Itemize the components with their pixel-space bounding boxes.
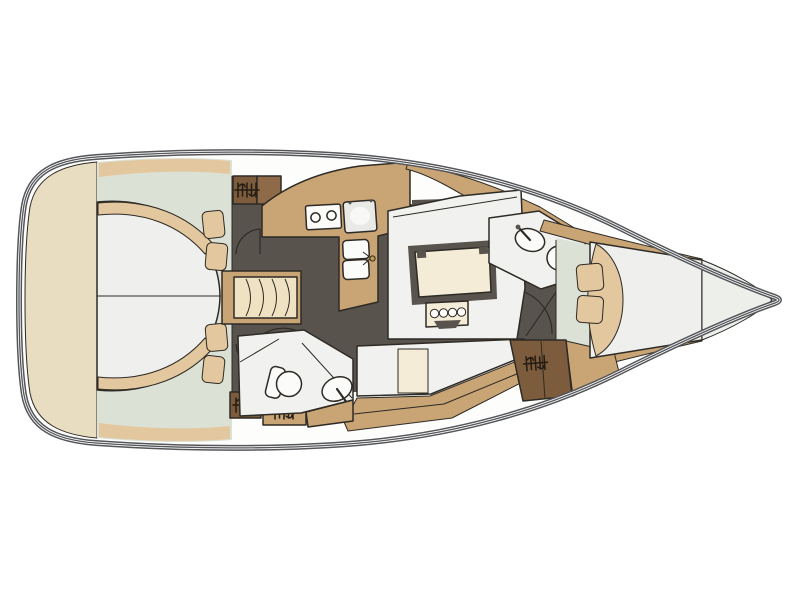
pillow <box>576 295 604 324</box>
pillow <box>202 210 226 239</box>
yacht-layout-plan <box>0 0 800 600</box>
bottle-hole <box>430 309 438 317</box>
burner <box>311 213 320 222</box>
settee-cushion <box>398 349 428 393</box>
companionway-steps <box>222 271 301 324</box>
pillow <box>205 242 228 271</box>
salon-table <box>415 247 491 297</box>
icebox-hinge <box>349 202 352 205</box>
toilet-bowl <box>277 372 302 397</box>
table-hinge <box>479 247 488 255</box>
hanger-icon <box>235 183 259 197</box>
floor-plan-canvas <box>0 0 800 600</box>
icebox-highlight <box>350 207 370 225</box>
galley-faucet-knob <box>370 256 375 261</box>
stern-deck <box>25 162 97 438</box>
bottle-hole <box>439 309 447 317</box>
hanger-icon <box>523 355 548 371</box>
bottle-hole <box>457 308 465 316</box>
galley-sink <box>342 239 369 259</box>
pillow <box>202 355 226 384</box>
steps-tread-area <box>234 277 297 318</box>
pillow <box>576 263 604 292</box>
icebox-hinge <box>370 200 373 203</box>
burner <box>327 211 336 220</box>
basin-faucet-knob <box>516 225 521 230</box>
table-hinge <box>417 251 426 259</box>
bottle-hole <box>448 308 456 316</box>
pillow <box>205 323 228 352</box>
